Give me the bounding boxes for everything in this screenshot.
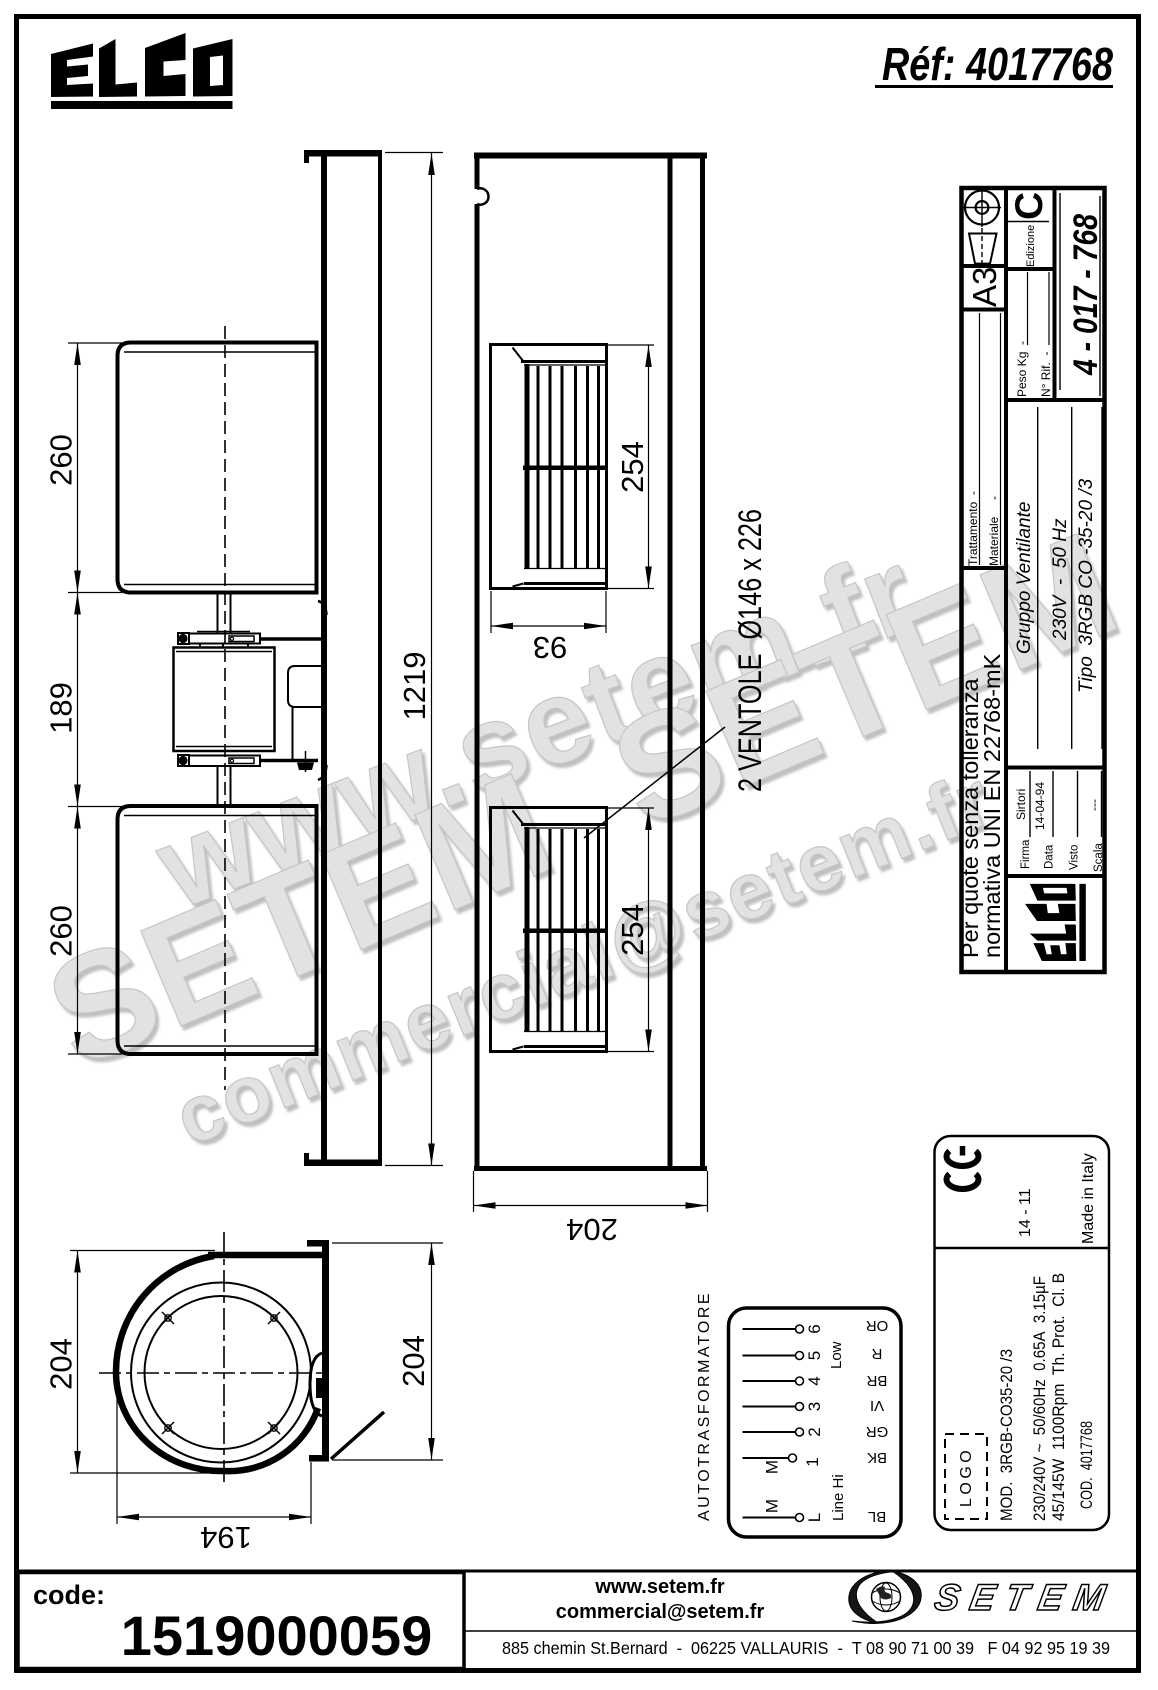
svg-text:204: 204 bbox=[396, 1335, 431, 1387]
svg-text:Tipo 3RGB CO -35-20 /3: Tipo 3RGB CO -35-20 /3 bbox=[1076, 478, 1097, 693]
svg-text:A3: A3 bbox=[966, 267, 1003, 307]
svg-text:Peso Kg -: Peso Kg - bbox=[1015, 341, 1029, 397]
svg-text:MOD. 3RGB-CO35-20 /3: MOD. 3RGB-CO35-20 /3 bbox=[997, 1349, 1016, 1521]
svg-text:BR: BR bbox=[866, 1372, 887, 1389]
svg-text:230/240V ~ 50/60Hz 0.65A 3.: 230/240V ~ 50/60Hz 0.65A 3.15µF bbox=[1030, 1276, 1049, 1521]
svg-text:Firma: Firma bbox=[1020, 839, 1032, 869]
svg-text:189: 189 bbox=[44, 682, 79, 734]
svg-text:885 chemin St.Bernard - 0622: 885 chemin St.Bernard - 06225 VALLAURIS … bbox=[502, 1638, 1110, 1658]
svg-text:COD. 4017768: COD. 4017768 bbox=[1077, 1421, 1096, 1509]
svg-text:BK: BK bbox=[867, 1449, 887, 1466]
svg-text:Edizione: Edizione bbox=[1025, 225, 1037, 267]
svg-text:AUTOTRASFORMATORE: AUTOTRASFORMATORE bbox=[696, 1291, 713, 1521]
svg-text:1219: 1219 bbox=[397, 652, 432, 721]
svg-text:www.setem.fr: www.setem.fr bbox=[594, 1576, 725, 1598]
svg-text:Sirtori: Sirtori bbox=[1014, 789, 1028, 820]
svg-text:1519000059: 1519000059 bbox=[121, 1604, 432, 1667]
svg-text:Made in Italy: Made in Italy bbox=[1080, 1153, 1097, 1244]
svg-text:1: 1 bbox=[803, 1457, 822, 1466]
svg-text:R: R bbox=[871, 1345, 882, 1362]
svg-text:L: L bbox=[805, 1513, 824, 1522]
svg-text:---: --- bbox=[1087, 799, 1101, 811]
svg-text:Scala: Scala bbox=[1093, 843, 1105, 872]
svg-text:194: 194 bbox=[200, 1520, 252, 1555]
svg-text:Data: Data bbox=[1044, 844, 1056, 869]
svg-text:C: C bbox=[1008, 192, 1051, 220]
svg-text:254: 254 bbox=[615, 904, 650, 956]
svg-text:254: 254 bbox=[615, 441, 650, 493]
svg-text:Gruppo Ventilante: Gruppo Ventilante bbox=[1014, 502, 1035, 654]
svg-text:M: M bbox=[763, 1460, 782, 1474]
svg-text:204: 204 bbox=[566, 1212, 618, 1247]
svg-text:14 - 11: 14 - 11 bbox=[1017, 1188, 1034, 1237]
svg-text:N° Rif. -: N° Rif. - bbox=[1039, 352, 1053, 397]
svg-text:Visto: Visto bbox=[1069, 845, 1081, 870]
svg-text:2: 2 bbox=[805, 1427, 824, 1436]
svg-text:GR: GR bbox=[866, 1423, 889, 1440]
svg-text:Line Hi: Line Hi bbox=[830, 1474, 847, 1521]
svg-text:Low: Low bbox=[828, 1341, 845, 1369]
svg-text:5: 5 bbox=[805, 1351, 824, 1360]
svg-text:204: 204 bbox=[44, 1338, 79, 1390]
svg-text:260: 260 bbox=[44, 434, 79, 486]
svg-text:normativa UNI EN 22768-mK: normativa UNI EN 22768-mK bbox=[979, 653, 1005, 958]
svg-text:BL: BL bbox=[868, 1508, 886, 1525]
svg-text:2 VENTOLE Ø146 x 226: 2 VENTOLE Ø146 x 226 bbox=[732, 509, 768, 792]
svg-text:Trattamento -: Trattamento - bbox=[966, 491, 980, 566]
svg-text:code:: code: bbox=[33, 1580, 105, 1610]
svg-text:6: 6 bbox=[805, 1324, 824, 1333]
svg-text:4: 4 bbox=[805, 1376, 824, 1385]
svg-text:VI: VI bbox=[870, 1397, 884, 1414]
svg-text:93: 93 bbox=[533, 630, 567, 665]
svg-text:230V - 50 Hz: 230V - 50 Hz bbox=[1050, 518, 1071, 641]
svg-text:Materiale -: Materiale - bbox=[987, 496, 1001, 566]
svg-text:SETEM: SETEM bbox=[932, 1576, 1119, 1618]
svg-text:4 - 017 - 768: 4 - 017 - 768 bbox=[1067, 214, 1105, 376]
svg-text:14-04-94: 14-04-94 bbox=[1033, 782, 1047, 830]
svg-text:LOGO: LOGO bbox=[958, 1447, 975, 1507]
svg-text:Réf: 4017768: Réf: 4017768 bbox=[882, 38, 1113, 90]
svg-text:OR: OR bbox=[866, 1317, 889, 1334]
svg-text:M: M bbox=[763, 1499, 782, 1513]
svg-text:3: 3 bbox=[805, 1402, 824, 1411]
svg-text:45/145W 1100Rpm Th. Prot. C: 45/145W 1100Rpm Th. Prot. Cl. B bbox=[1049, 1273, 1068, 1521]
svg-text:commercial@setem.fr: commercial@setem.fr bbox=[556, 1601, 765, 1623]
svg-text:260: 260 bbox=[44, 905, 79, 957]
